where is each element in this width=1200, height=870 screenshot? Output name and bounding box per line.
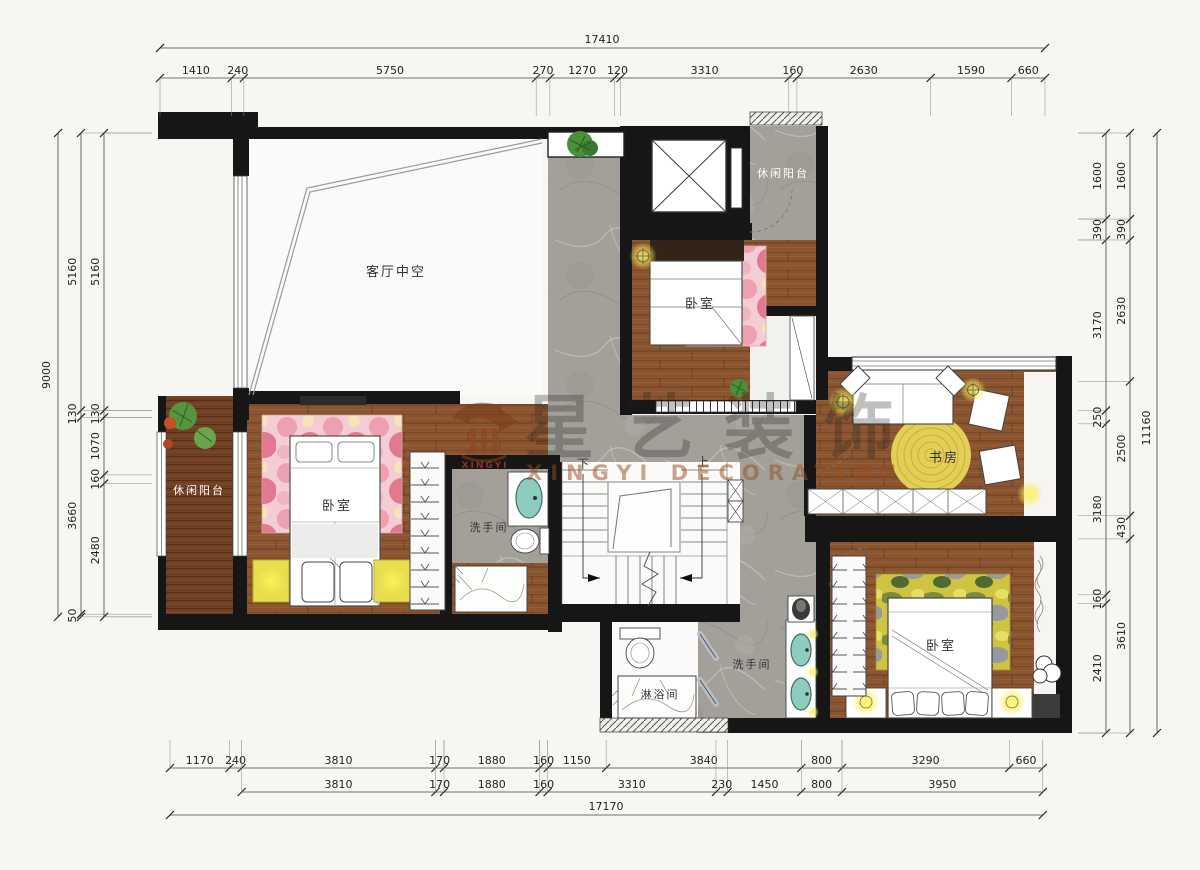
wall xyxy=(158,556,166,618)
tv-cabinet xyxy=(300,396,366,405)
toilet-mid xyxy=(511,528,549,554)
wall xyxy=(600,616,612,718)
dim-label: 390 xyxy=(1091,219,1104,240)
dim-label: 160 xyxy=(533,754,554,767)
dim-label: 660 xyxy=(1016,754,1037,767)
bedroom-left-label: 卧室 xyxy=(322,498,352,514)
wall xyxy=(548,604,740,622)
dim-label: 5160 xyxy=(66,258,79,286)
dim-label: 3660 xyxy=(66,502,79,530)
plant xyxy=(194,427,216,449)
dim-label: 3290 xyxy=(912,754,940,767)
wall-pillar xyxy=(233,132,249,176)
stair-shaft-boxes xyxy=(728,480,743,522)
study-wardrobe xyxy=(808,489,986,514)
wall xyxy=(1032,694,1060,718)
dim-label: 2630 xyxy=(850,64,878,77)
balcony-top-label: 休闲阳台 xyxy=(757,166,809,180)
bed-throw xyxy=(292,524,378,558)
dim-label: 1270 xyxy=(568,64,596,77)
dim-label: 3810 xyxy=(325,778,353,791)
lamp-glow xyxy=(998,688,1026,716)
bedroom-top-label: 卧室 xyxy=(685,296,715,312)
window-study-top xyxy=(852,357,1056,370)
wall xyxy=(158,396,166,432)
window-balcony-left-outer xyxy=(157,432,166,556)
dim-label: 3170 xyxy=(1091,311,1104,339)
watermark-brand-cn: 星艺装饰 xyxy=(524,387,924,469)
dim-label: 2410 xyxy=(1091,654,1104,682)
bath-bottom-floor xyxy=(698,620,788,733)
dim-label: 3310 xyxy=(691,64,719,77)
dim-label: 160 xyxy=(782,64,803,77)
floor-plan-drawing: 下 上 卧室 休闲阳台 书房 休闲阳台 xyxy=(0,0,1200,870)
study-label: 书房 xyxy=(929,450,959,466)
dim-label: 1880 xyxy=(478,778,506,791)
dim-label: 1450 xyxy=(750,778,778,791)
dim-label: 160 xyxy=(533,778,554,791)
wardrobe-bottom-bedroom xyxy=(832,556,866,696)
dim-label: 3310 xyxy=(618,778,646,791)
dim-label: 230 xyxy=(711,778,732,791)
dim-total-top: 17410 xyxy=(585,33,620,46)
dim-total-left: 9000 xyxy=(40,361,53,389)
dim-total-right: 11160 xyxy=(1140,411,1153,446)
bed-headboard xyxy=(650,240,744,261)
dim-label: 3180 xyxy=(1091,495,1104,523)
elevator-door-slot xyxy=(731,148,742,208)
living-void-label: 客厅中空 xyxy=(366,264,426,280)
dim-label: 3950 xyxy=(928,778,956,791)
armchair-foot xyxy=(340,562,372,602)
dim-label: 170 xyxy=(429,778,450,791)
dim-label: 240 xyxy=(227,64,248,77)
lamp-glow xyxy=(256,566,286,596)
corridor-planter xyxy=(548,131,624,157)
wall xyxy=(816,540,830,718)
dim-label: 3810 xyxy=(325,754,353,767)
pillow xyxy=(296,442,332,462)
dim-label: 1170 xyxy=(186,754,214,767)
wall xyxy=(805,516,1072,542)
wall xyxy=(632,223,752,240)
wardrobe-left-bedroom xyxy=(410,452,445,610)
open-hatch-bottom xyxy=(600,718,728,732)
wall xyxy=(728,718,1072,733)
plant-flower xyxy=(164,417,176,429)
wall-pillar xyxy=(233,388,249,420)
bedroom-bottom-label: 卧室 xyxy=(926,638,956,654)
dim-label: 160 xyxy=(1091,589,1104,610)
dim-label: 660 xyxy=(1018,64,1039,77)
dim-label: 160 xyxy=(89,469,102,490)
dim-label: 170 xyxy=(429,754,450,767)
dim-label: 50 xyxy=(66,609,79,623)
dim-label: 2480 xyxy=(89,536,102,564)
dim-label: 800 xyxy=(811,778,832,791)
dim-label: 3610 xyxy=(1115,622,1128,650)
dim-label: 1880 xyxy=(478,754,506,767)
dim-label: 130 xyxy=(89,403,102,424)
dim-label: 1600 xyxy=(1115,162,1128,190)
watermark-brand-en: XINGYI DECORATION xyxy=(526,461,904,485)
dim-label: 1410 xyxy=(182,64,210,77)
shower-room-label: 淋浴间 xyxy=(641,688,680,701)
dim-label: 5160 xyxy=(89,258,102,286)
armchair-foot xyxy=(302,562,334,602)
bath-bottom-label: 洗手间 xyxy=(733,657,772,671)
balcony-left-label: 休闲阳台 xyxy=(173,483,225,497)
ceiling-light xyxy=(1017,481,1043,507)
dim-label: 250 xyxy=(1091,407,1104,428)
floor-plan-sheet: 下 上 卧室 休闲阳台 书房 休闲阳台 xyxy=(0,0,1200,870)
wall xyxy=(816,357,852,371)
dim-label: 5750 xyxy=(376,64,404,77)
dim-total-bottom: 17170 xyxy=(589,800,624,813)
dim-label: 270 xyxy=(533,64,554,77)
window-balcony-bedroom xyxy=(233,432,247,556)
dim-label: 1590 xyxy=(957,64,985,77)
plant-flower xyxy=(163,439,173,449)
dim-label: 120 xyxy=(607,64,628,77)
balcony-left-floor xyxy=(163,396,233,618)
wall xyxy=(158,614,562,630)
dim-label: 1070 xyxy=(89,432,102,460)
shower-pan-mid xyxy=(455,566,527,612)
dim-label: 430 xyxy=(1115,517,1128,538)
dim-label: 130 xyxy=(66,403,79,424)
wall xyxy=(233,556,247,618)
dim-label: 3840 xyxy=(690,754,718,767)
dim-label: 1600 xyxy=(1091,162,1104,190)
bath-mid-label: 洗手间 xyxy=(470,520,509,534)
dim-label: 390 xyxy=(1115,219,1128,240)
window-living-left xyxy=(234,176,247,388)
open-hatch-top xyxy=(750,112,822,125)
lamp-glow xyxy=(378,566,408,596)
wall xyxy=(158,112,258,127)
dim-label: 2500 xyxy=(1115,435,1128,463)
dim-label: 240 xyxy=(225,754,246,767)
dim-label: 800 xyxy=(811,754,832,767)
pillow xyxy=(338,442,374,462)
fixture-top xyxy=(788,596,814,622)
dim-label: 1150 xyxy=(563,754,591,767)
armchair xyxy=(979,445,1020,485)
dim-label: 2630 xyxy=(1115,297,1128,325)
watermark-logo-text: XINGYI xyxy=(462,461,509,471)
